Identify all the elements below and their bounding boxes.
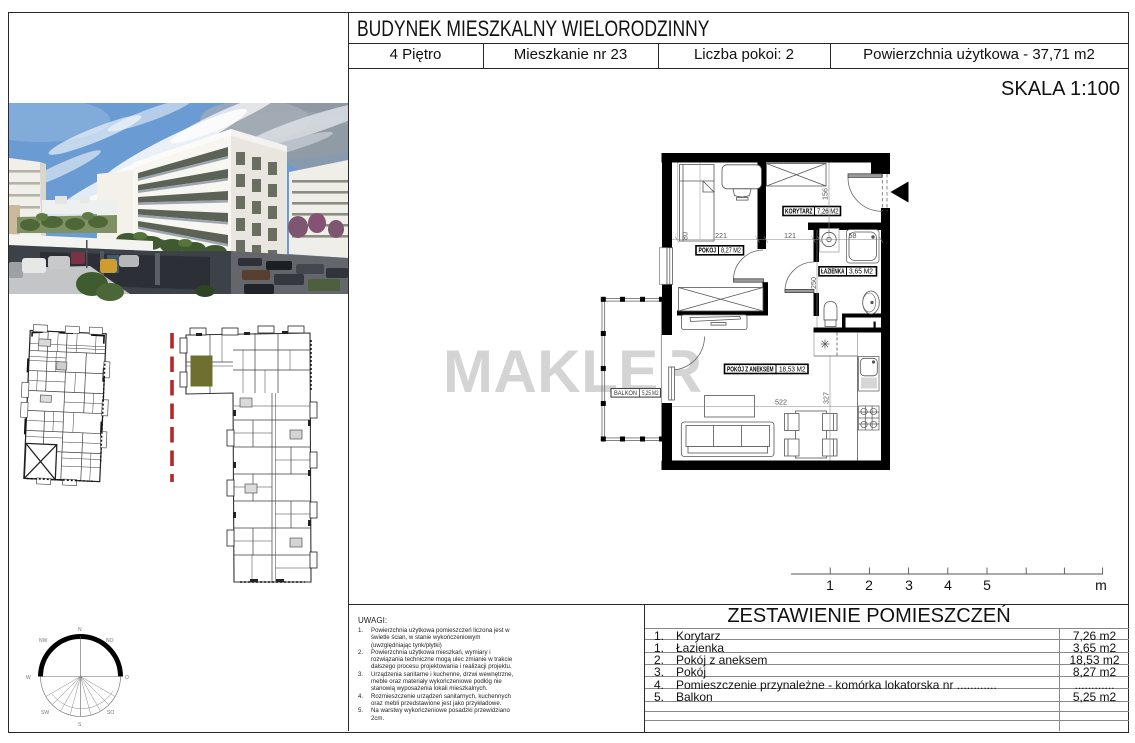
- svg-text:SO: SO: [107, 710, 114, 716]
- svg-text:N: N: [78, 627, 82, 633]
- svg-text:522: 522: [775, 398, 787, 407]
- svg-text:250: 250: [809, 277, 818, 289]
- svg-text:4: 4: [944, 577, 952, 593]
- svg-text:POKÓJ: POKÓJ: [699, 246, 717, 255]
- svg-text:BALKON: BALKON: [614, 390, 637, 397]
- svg-text:5,25 M2: 5,25 M2: [642, 390, 659, 397]
- svg-text:NO: NO: [106, 638, 114, 644]
- svg-text:W: W: [26, 675, 31, 681]
- svg-text:18,53 M2: 18,53 M2: [779, 366, 806, 373]
- svg-text:8,27 M2: 8,27 M2: [721, 248, 741, 255]
- svg-text:121: 121: [784, 231, 796, 240]
- svg-text:221: 221: [715, 231, 727, 240]
- svg-text:3,65 M2: 3,65 M2: [849, 269, 873, 276]
- svg-text:SW: SW: [41, 710, 49, 716]
- svg-text:S: S: [78, 722, 82, 728]
- svg-text:156: 156: [821, 188, 830, 200]
- svg-text:80: 80: [681, 232, 690, 240]
- svg-text:NW: NW: [39, 638, 48, 644]
- svg-text:2: 2: [865, 577, 873, 593]
- svg-text:m: m: [1095, 577, 1107, 593]
- svg-text:1: 1: [826, 577, 834, 593]
- svg-text:POKÓJ Z ANEKSEM: POKÓJ Z ANEKSEM: [727, 364, 774, 373]
- svg-text:58: 58: [849, 231, 857, 240]
- svg-text:7,26 M2: 7,26 M2: [817, 208, 839, 215]
- svg-text:KORYTARZ: KORYTARZ: [785, 208, 813, 215]
- svg-text:O: O: [125, 675, 129, 681]
- svg-text:3: 3: [905, 577, 913, 593]
- svg-text:5: 5: [983, 577, 991, 593]
- svg-text:327: 327: [822, 392, 831, 404]
- svg-text:ŁAZIENKA: ŁAZIENKA: [821, 269, 845, 276]
